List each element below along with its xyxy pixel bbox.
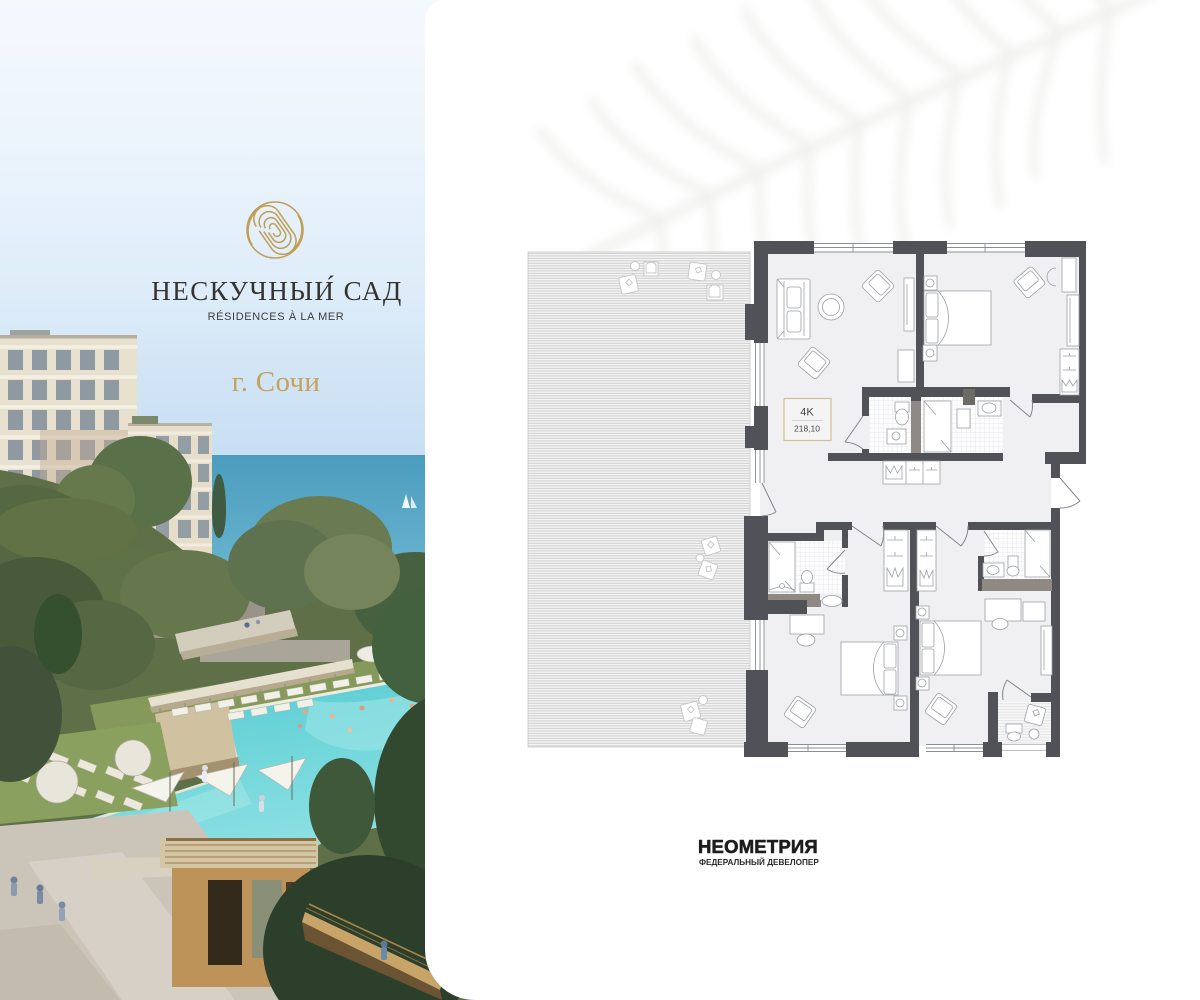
svg-text:RÉSIDENCES À LA MER: RÉSIDENCES À LA MER (208, 310, 345, 323)
svg-text:г. Сочи: г. Сочи (232, 366, 320, 398)
svg-text:4K: 4K (800, 407, 814, 419)
svg-text:НЕСКУЧНЫИ́ САД: НЕСКУЧНЫИ́ САД (151, 276, 403, 306)
svg-text:НЕОМЕТРИЯ: НЕОМЕТРИЯ (698, 836, 818, 857)
svg-text:218,10: 218,10 (794, 424, 820, 434)
svg-text:ФЕДЕРАЛЬНЫЙ ДЕВЕЛОПЕР: ФЕДЕРАЛЬНЫЙ ДЕВЕЛОПЕР (699, 856, 819, 867)
